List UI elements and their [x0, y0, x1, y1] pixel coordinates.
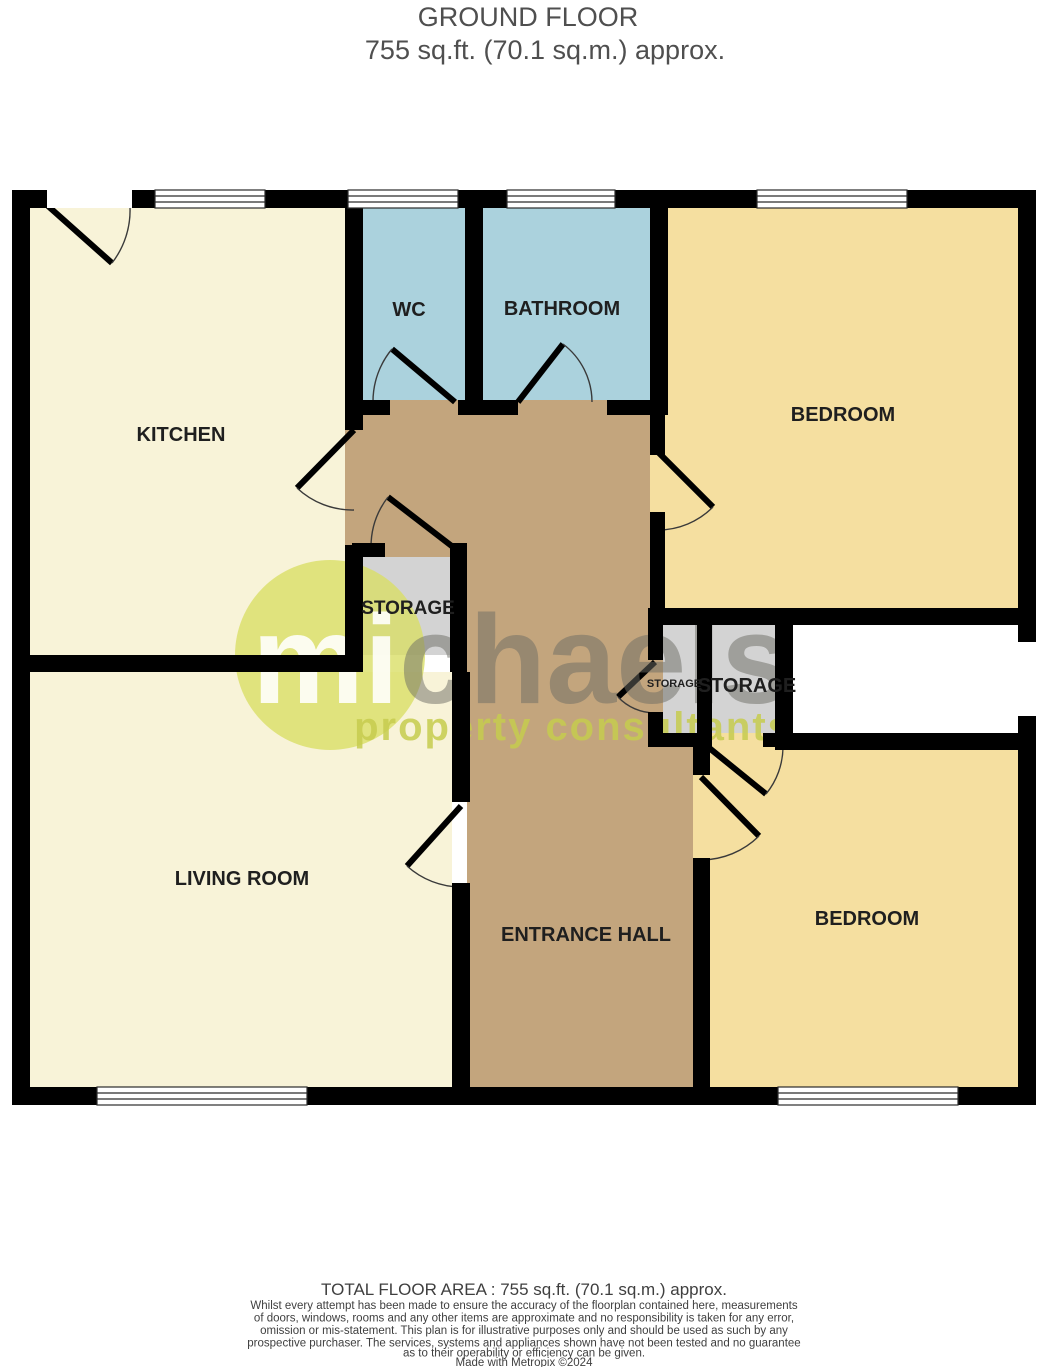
storage-small-right-label: STORAGE	[698, 675, 797, 697]
plan-subtitle: 755 sq.ft. (70.1 sq.m.) approx.	[365, 35, 725, 65]
bathroom-label: BATHROOM	[504, 298, 620, 320]
wall-wc-bottom-left	[347, 400, 390, 415]
disclaimer-line-3: omission or mis-statement. This plan is …	[260, 1325, 788, 1337]
wall-bedroom-bottom-left-stub-upper	[693, 747, 710, 775]
wall-wc-bathroom-divider	[465, 208, 483, 415]
entrance-hall-label: ENTRANCE HALL	[501, 924, 671, 946]
wall-storage-small-bottom	[648, 733, 712, 747]
floorplan-svg: GROUND FLOOR 755 sq.ft. (70.1 sq.m.) app…	[0, 0, 1048, 1367]
living-room-label: LIVING ROOM	[175, 868, 309, 890]
disclaimer-line-1: Whilst every attempt has been made to en…	[250, 1300, 797, 1312]
wall-living-hall-lower	[452, 883, 470, 1087]
wall-storage-small-bottom-stub	[763, 733, 793, 747]
wall-bedroom-top-left-stub-upper	[650, 415, 665, 455]
wall-wc-bath-bottom-mid	[458, 400, 518, 415]
wall-exterior-right-bottom	[1018, 733, 1036, 1105]
bedroom-bottom-label: BEDROOM	[815, 908, 919, 930]
window-bathroom-top	[507, 190, 615, 208]
window-bedroom-top	[757, 190, 907, 208]
footer: TOTAL FLOOR AREA : 755 sq.ft. (70.1 sq.m…	[247, 1280, 800, 1367]
wall-notch-cap-top	[1018, 608, 1036, 642]
metropix-credit: Made with Metropix ©2024	[456, 1357, 594, 1367]
kitchen-label: KITCHEN	[137, 424, 226, 446]
wall-bedroom-bottom-left-stub-lower	[693, 858, 710, 1087]
wall-kitchen-living-divider	[12, 655, 363, 672]
window-kitchen-top	[155, 190, 265, 208]
openings	[47, 190, 132, 208]
wall-exterior-right-top	[1018, 190, 1036, 625]
wall-exterior-left	[12, 190, 30, 1105]
storage-label: STORAGE	[361, 598, 455, 619]
storage-small-left-label: STORAGE	[647, 678, 701, 690]
wall-living-hall-upper	[452, 672, 470, 802]
wall-kitchen-right-upper	[345, 208, 363, 430]
logo-tagline: property consultants	[354, 705, 792, 749]
wall-bottomwing-top	[778, 733, 1036, 750]
window-living-room	[97, 1087, 307, 1105]
window-bedroom-bottom	[778, 1087, 958, 1105]
total-floor-area: TOTAL FLOOR AREA : 755 sq.ft. (70.1 sq.m…	[321, 1280, 727, 1299]
front-door-opening	[47, 190, 132, 208]
window-wc-top	[348, 190, 458, 208]
hall-floor-lower	[467, 747, 693, 1087]
wc-label: WC	[392, 299, 425, 321]
bedroom-top-label: BEDROOM	[791, 404, 895, 426]
wall-storage-top-stub	[352, 543, 385, 557]
disclaimer-line-2: of doors, windows, rooms and any other i…	[254, 1313, 794, 1325]
floorplan-page: GROUND FLOOR 755 sq.ft. (70.1 sq.m.) app…	[0, 0, 1048, 1367]
wall-storage-small-left-stub-upper	[648, 608, 663, 660]
plan-title: GROUND FLOOR	[418, 2, 639, 32]
wall-topwing-bottom	[650, 608, 1036, 625]
wall-bath-bedroom-divider	[650, 208, 668, 415]
